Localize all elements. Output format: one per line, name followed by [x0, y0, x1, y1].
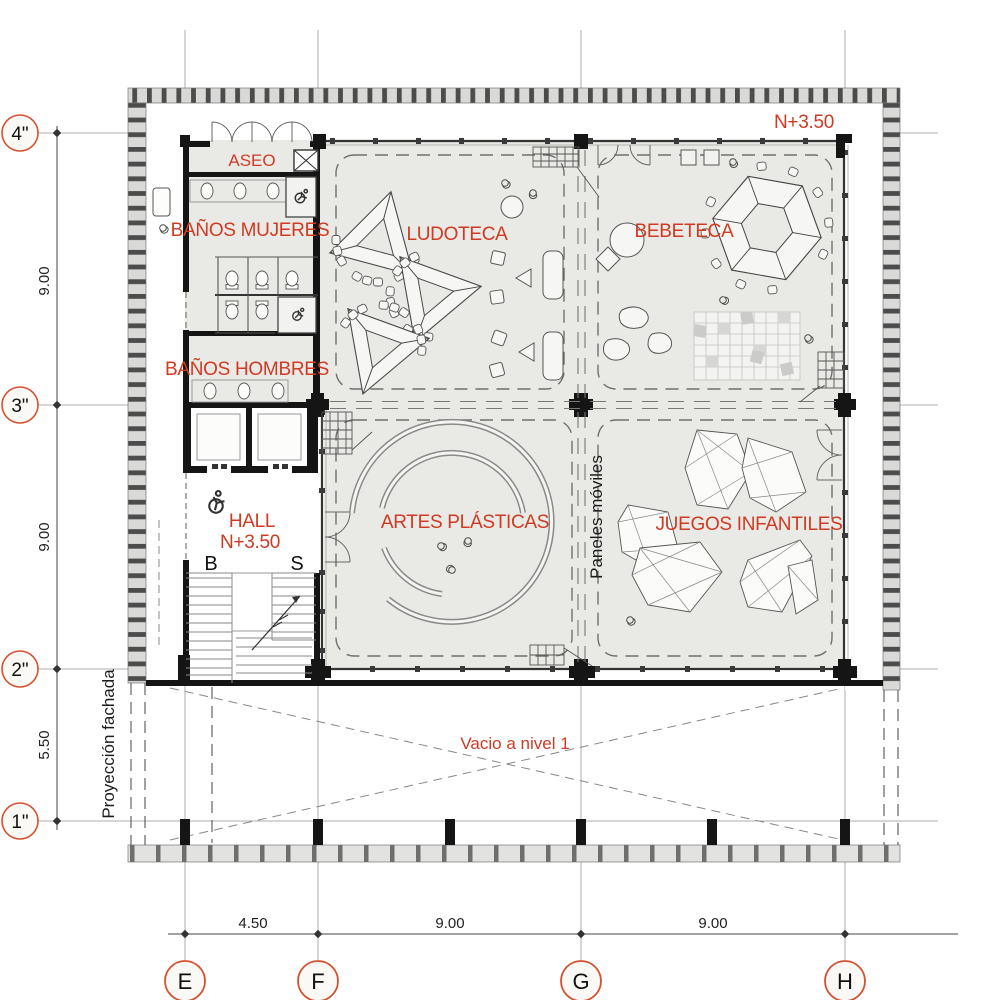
dim-left-0: 9.00: [36, 266, 53, 295]
room-label-juegos-infantiles: JUEGOS INFANTILES: [655, 514, 842, 535]
stair-down-label: B: [204, 553, 217, 575]
dim-bottom-0: 4.50: [238, 915, 267, 932]
room-label-ludoteca: LUDOTECA: [406, 224, 508, 245]
shaft-x-icon: [294, 150, 318, 171]
dim-bottom-1: 9.00: [435, 915, 464, 932]
puzzle-mat: [693, 311, 800, 380]
grid-bubble-col-g: G: [572, 969, 589, 994]
grid-bubble-row-1: 1": [11, 812, 28, 833]
room-label-hall-level: N+3.50: [220, 532, 280, 553]
dim-left-1: 9.00: [36, 522, 53, 551]
room-label-banos-mujeres: BAÑOS MUJERES: [171, 219, 330, 241]
level-note: N+3.50: [774, 112, 834, 133]
stair-up-label: S: [290, 553, 303, 575]
dim-bottom-2: 9.00: [698, 915, 727, 932]
grid-bubble-row-2: 2": [11, 660, 28, 681]
dim-left-2: 5.50: [36, 730, 53, 759]
room-label-hall: HALL: [229, 511, 275, 532]
paneles-moviles-label: Paneles móviles: [587, 455, 606, 579]
facade-band-left: [128, 103, 146, 683]
facade-band-right: [883, 103, 900, 690]
proyeccion-fachada-label: Proyección fachada: [99, 669, 118, 819]
facade-band-top: [128, 88, 900, 103]
void-label: Vacio a nivel 1: [460, 734, 569, 753]
grid-bubble-col-f: F: [311, 969, 324, 994]
room-label-bebeteca: BEBETECA: [635, 221, 735, 242]
grid-bubble-col-e: E: [178, 969, 193, 994]
facade-band-bottom: [128, 845, 900, 862]
room-label-banos-hombres: BAÑOS HOMBRES: [165, 358, 329, 380]
room-label-aseo: ASEO: [228, 151, 275, 170]
room-label-artes-plasticas: ARTES PLÁSTICAS: [381, 512, 549, 533]
floor-plan-sheet: ASEO BAÑOS MUJERES BAÑOS HOMBRES HALL N+…: [0, 0, 988, 1000]
grid-bubble-col-h: H: [837, 969, 853, 994]
grid-bubble-row-3: 3": [11, 396, 28, 417]
grid-bubble-row-4: 4": [11, 124, 28, 145]
floor-plan-drawing: ASEO BAÑOS MUJERES BAÑOS HOMBRES HALL N+…: [0, 0, 988, 1000]
